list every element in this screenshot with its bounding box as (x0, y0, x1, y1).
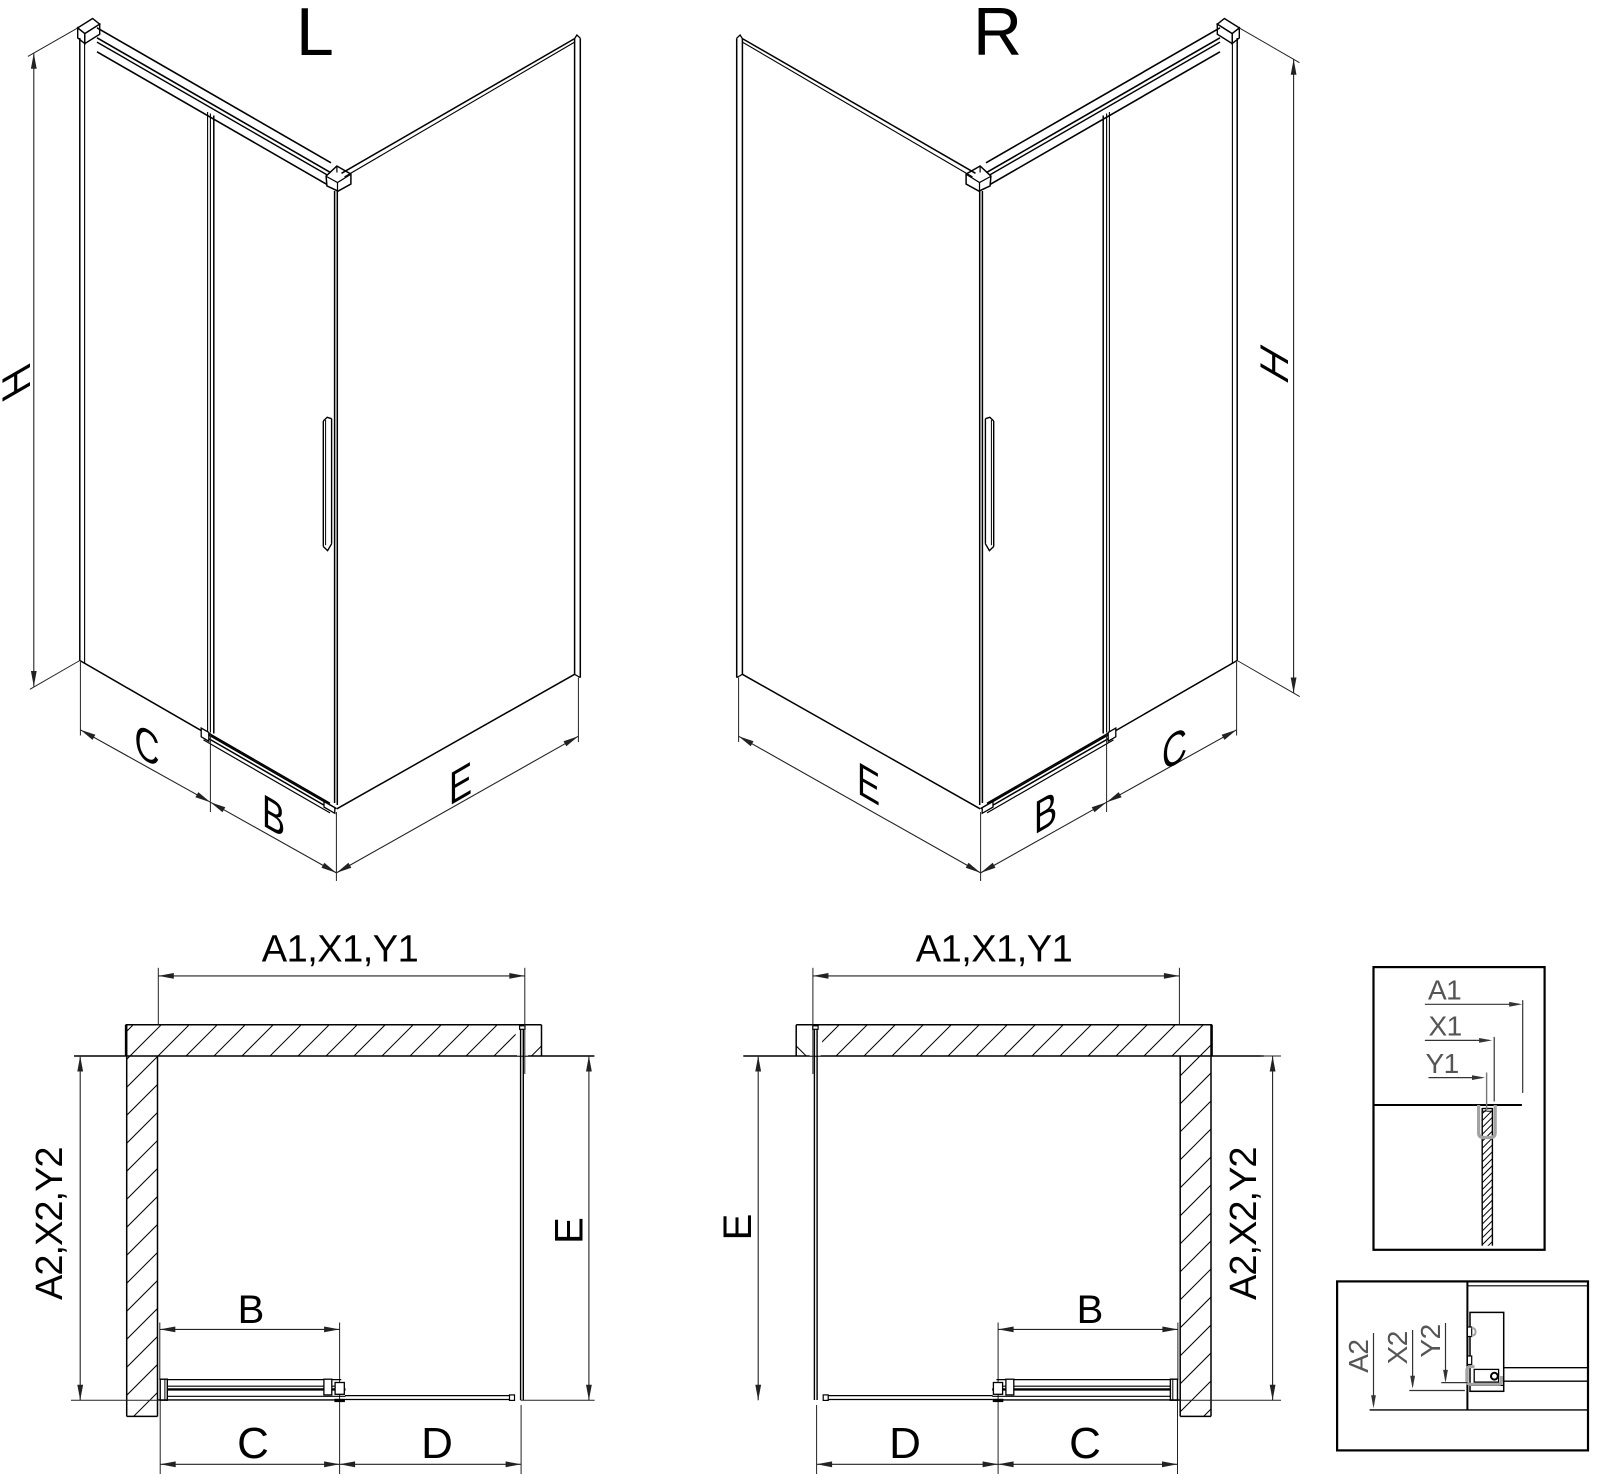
svg-text:A1: A1 (1428, 975, 1461, 1006)
svg-text:Y2: Y2 (1415, 1324, 1446, 1357)
svg-text:R: R (973, 0, 1022, 70)
svg-text:L: L (296, 0, 334, 70)
svg-text:X2: X2 (1382, 1331, 1413, 1364)
svg-text:E: E (716, 1214, 760, 1241)
svg-text:A2: A2 (1343, 1340, 1374, 1373)
svg-text:C: C (1069, 1419, 1101, 1468)
svg-text:D: D (421, 1419, 453, 1468)
svg-text:C: C (237, 1419, 269, 1468)
svg-text:A1,X1,Y1: A1,X1,Y1 (916, 929, 1073, 971)
svg-text:A2,X2,Y2: A2,X2,Y2 (1223, 1147, 1265, 1300)
svg-text:B: B (1077, 1288, 1104, 1332)
svg-text:D: D (889, 1419, 921, 1468)
svg-text:A1,X1,Y1: A1,X1,Y1 (262, 929, 419, 971)
svg-text:B: B (238, 1288, 265, 1332)
svg-text:A2,X2,Y2: A2,X2,Y2 (29, 1147, 71, 1300)
svg-text:X1: X1 (1429, 1010, 1462, 1041)
svg-text:E: E (548, 1217, 592, 1244)
svg-text:Y1: Y1 (1426, 1048, 1459, 1079)
